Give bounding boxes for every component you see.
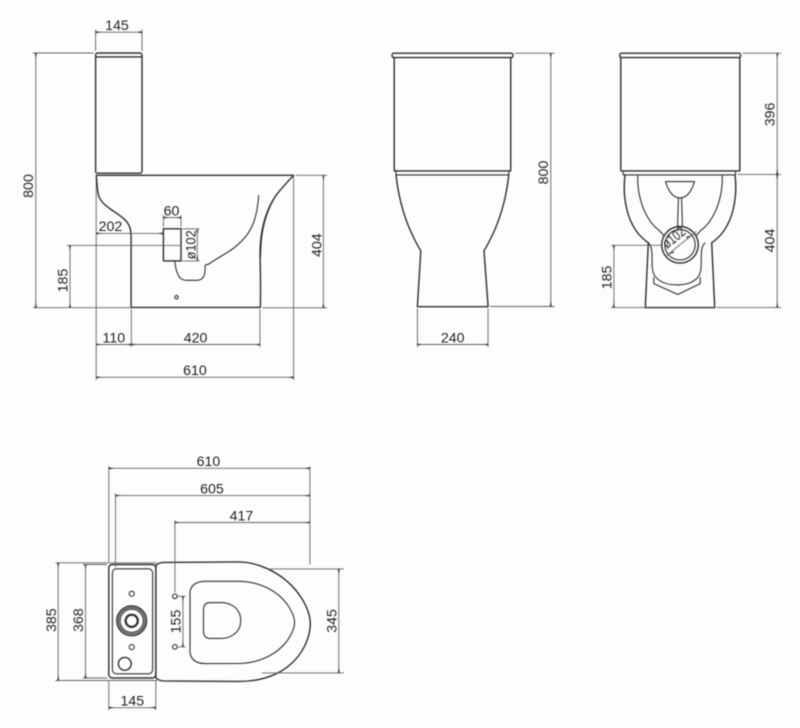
svg-text:417: 417 <box>230 508 254 524</box>
svg-text:ø102: ø102 <box>184 230 200 259</box>
svg-text:404: 404 <box>309 233 325 257</box>
svg-text:145: 145 <box>105 18 129 34</box>
svg-text:396: 396 <box>763 102 779 126</box>
svg-text:185: 185 <box>56 269 72 293</box>
svg-text:110: 110 <box>102 330 125 346</box>
svg-text:240: 240 <box>441 330 465 346</box>
svg-text:605: 605 <box>200 481 224 497</box>
svg-text:202: 202 <box>99 219 123 235</box>
svg-text:610: 610 <box>183 363 207 379</box>
svg-text:345: 345 <box>324 609 340 633</box>
svg-text:610: 610 <box>197 454 221 470</box>
svg-text:420: 420 <box>184 330 208 346</box>
svg-text:368: 368 <box>71 608 87 632</box>
svg-text:145: 145 <box>120 694 144 710</box>
svg-text:385: 385 <box>44 608 60 632</box>
svg-text:155: 155 <box>168 610 184 634</box>
svg-text:800: 800 <box>21 174 37 198</box>
svg-text:185: 185 <box>600 265 616 289</box>
svg-text:800: 800 <box>536 161 552 185</box>
svg-text:60: 60 <box>164 204 180 220</box>
svg-text:404: 404 <box>763 229 779 253</box>
